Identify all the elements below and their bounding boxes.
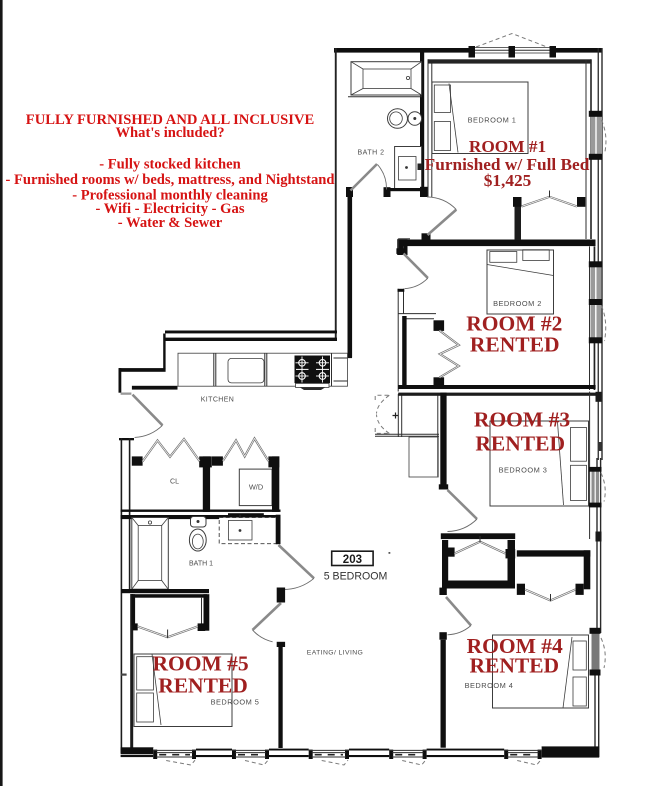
svg-text:RENTED: RENTED [475, 431, 565, 455]
svg-text:- Water & Sewer: - Water & Sewer [118, 215, 223, 231]
svg-text:BEDROOM 2: BEDROOM 2 [493, 299, 542, 308]
svg-text:ROOM #5: ROOM #5 [153, 652, 249, 676]
svg-text:BEDROOM 5: BEDROOM 5 [211, 697, 260, 706]
svg-text:RENTED: RENTED [158, 673, 248, 697]
svg-text:CL: CL [170, 479, 179, 486]
svg-text:BEDROOM 3: BEDROOM 3 [499, 466, 548, 475]
svg-text:EATING/ LIVING: EATING/ LIVING [307, 650, 363, 657]
svg-text:What's included?: What's included? [115, 125, 224, 141]
svg-text:BATH 1: BATH 1 [189, 561, 213, 568]
svg-text:BEDROOM 4: BEDROOM 4 [465, 681, 514, 690]
svg-text:RENTED: RENTED [470, 333, 560, 357]
svg-text:ROOM #1: ROOM #1 [469, 137, 546, 156]
svg-text:203: 203 [343, 554, 362, 566]
svg-text:RENTED: RENTED [469, 654, 559, 678]
svg-text:- Fully stocked kitchen: - Fully stocked kitchen [99, 157, 240, 173]
svg-text:BATH 2: BATH 2 [358, 150, 385, 157]
svg-text:- Furnished rooms w/ beds, mat: - Furnished rooms w/ beds, mattress, and… [5, 172, 334, 188]
svg-text:KITCHEN: KITCHEN [201, 397, 235, 404]
svg-text:$1,425: $1,425 [484, 171, 532, 190]
svg-text:W/D: W/D [249, 483, 263, 492]
svg-text:BEDROOM 1: BEDROOM 1 [468, 116, 517, 125]
svg-text:ROOM #3: ROOM #3 [474, 408, 570, 432]
svg-text:5 BEDROOM: 5 BEDROOM [324, 571, 388, 583]
